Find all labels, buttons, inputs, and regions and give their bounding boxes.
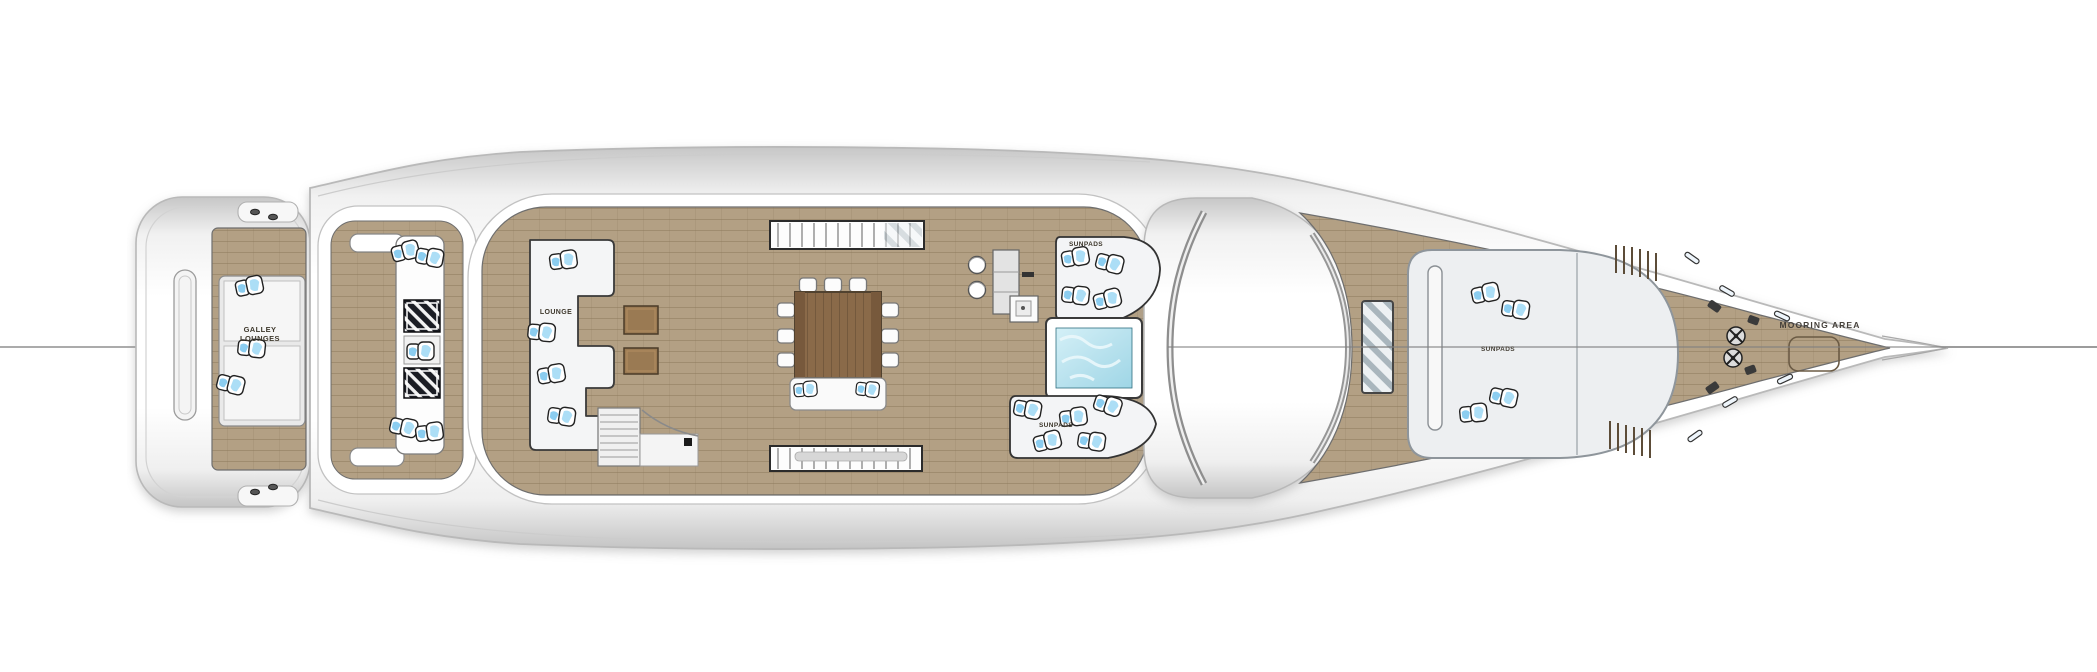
dining-chair [800, 278, 817, 292]
roll-pillow [1428, 266, 1442, 430]
transom-step-bottom [238, 486, 298, 506]
dining-set [778, 278, 899, 410]
winch-icon [1724, 349, 1742, 367]
swim-platform [174, 270, 196, 420]
dining-chair [825, 278, 842, 292]
cleat-icon [251, 209, 260, 215]
cleat-icon [269, 484, 278, 490]
cushion-icon [237, 338, 266, 359]
superstructure-roof [1144, 198, 1356, 498]
dining-chair [778, 303, 795, 317]
dining-chair [882, 353, 899, 367]
cushion-icon [407, 342, 434, 360]
dining-chair [778, 353, 795, 367]
deck-plan-drawing [0, 0, 2097, 672]
side-table-striped [404, 368, 440, 398]
winch-icon [1727, 327, 1745, 345]
jacuzzi [1046, 318, 1142, 398]
bar-stool [969, 257, 986, 274]
dining-chair [882, 303, 899, 317]
dining-table [795, 292, 881, 378]
yacht-deck-plan: GALLEY LOUNGES LOUNGE SUNPADS SUNPADS SU… [0, 0, 2097, 672]
corner-sofa [350, 448, 404, 466]
dining-chair [778, 329, 795, 343]
skylight-aft-top [770, 221, 924, 249]
skylight-aft-bottom [770, 446, 922, 471]
cushion-icon [855, 380, 879, 398]
aft-sunpad-bottom [1010, 392, 1156, 458]
bar-stool [969, 282, 986, 299]
cleat-icon [1687, 429, 1703, 442]
cushion-icon [527, 322, 555, 342]
cleat-icon [251, 489, 260, 495]
aft-cockpit-deck [331, 221, 463, 479]
cleat-icon [1684, 251, 1700, 264]
transom-step-top [238, 202, 298, 222]
cushion-icon [1061, 285, 1090, 306]
side-table-striped [404, 300, 440, 332]
dining-chair [882, 329, 899, 343]
cleat-icon [269, 214, 278, 220]
dining-chair [850, 278, 867, 292]
foredeck-sunpad [1408, 250, 1678, 458]
